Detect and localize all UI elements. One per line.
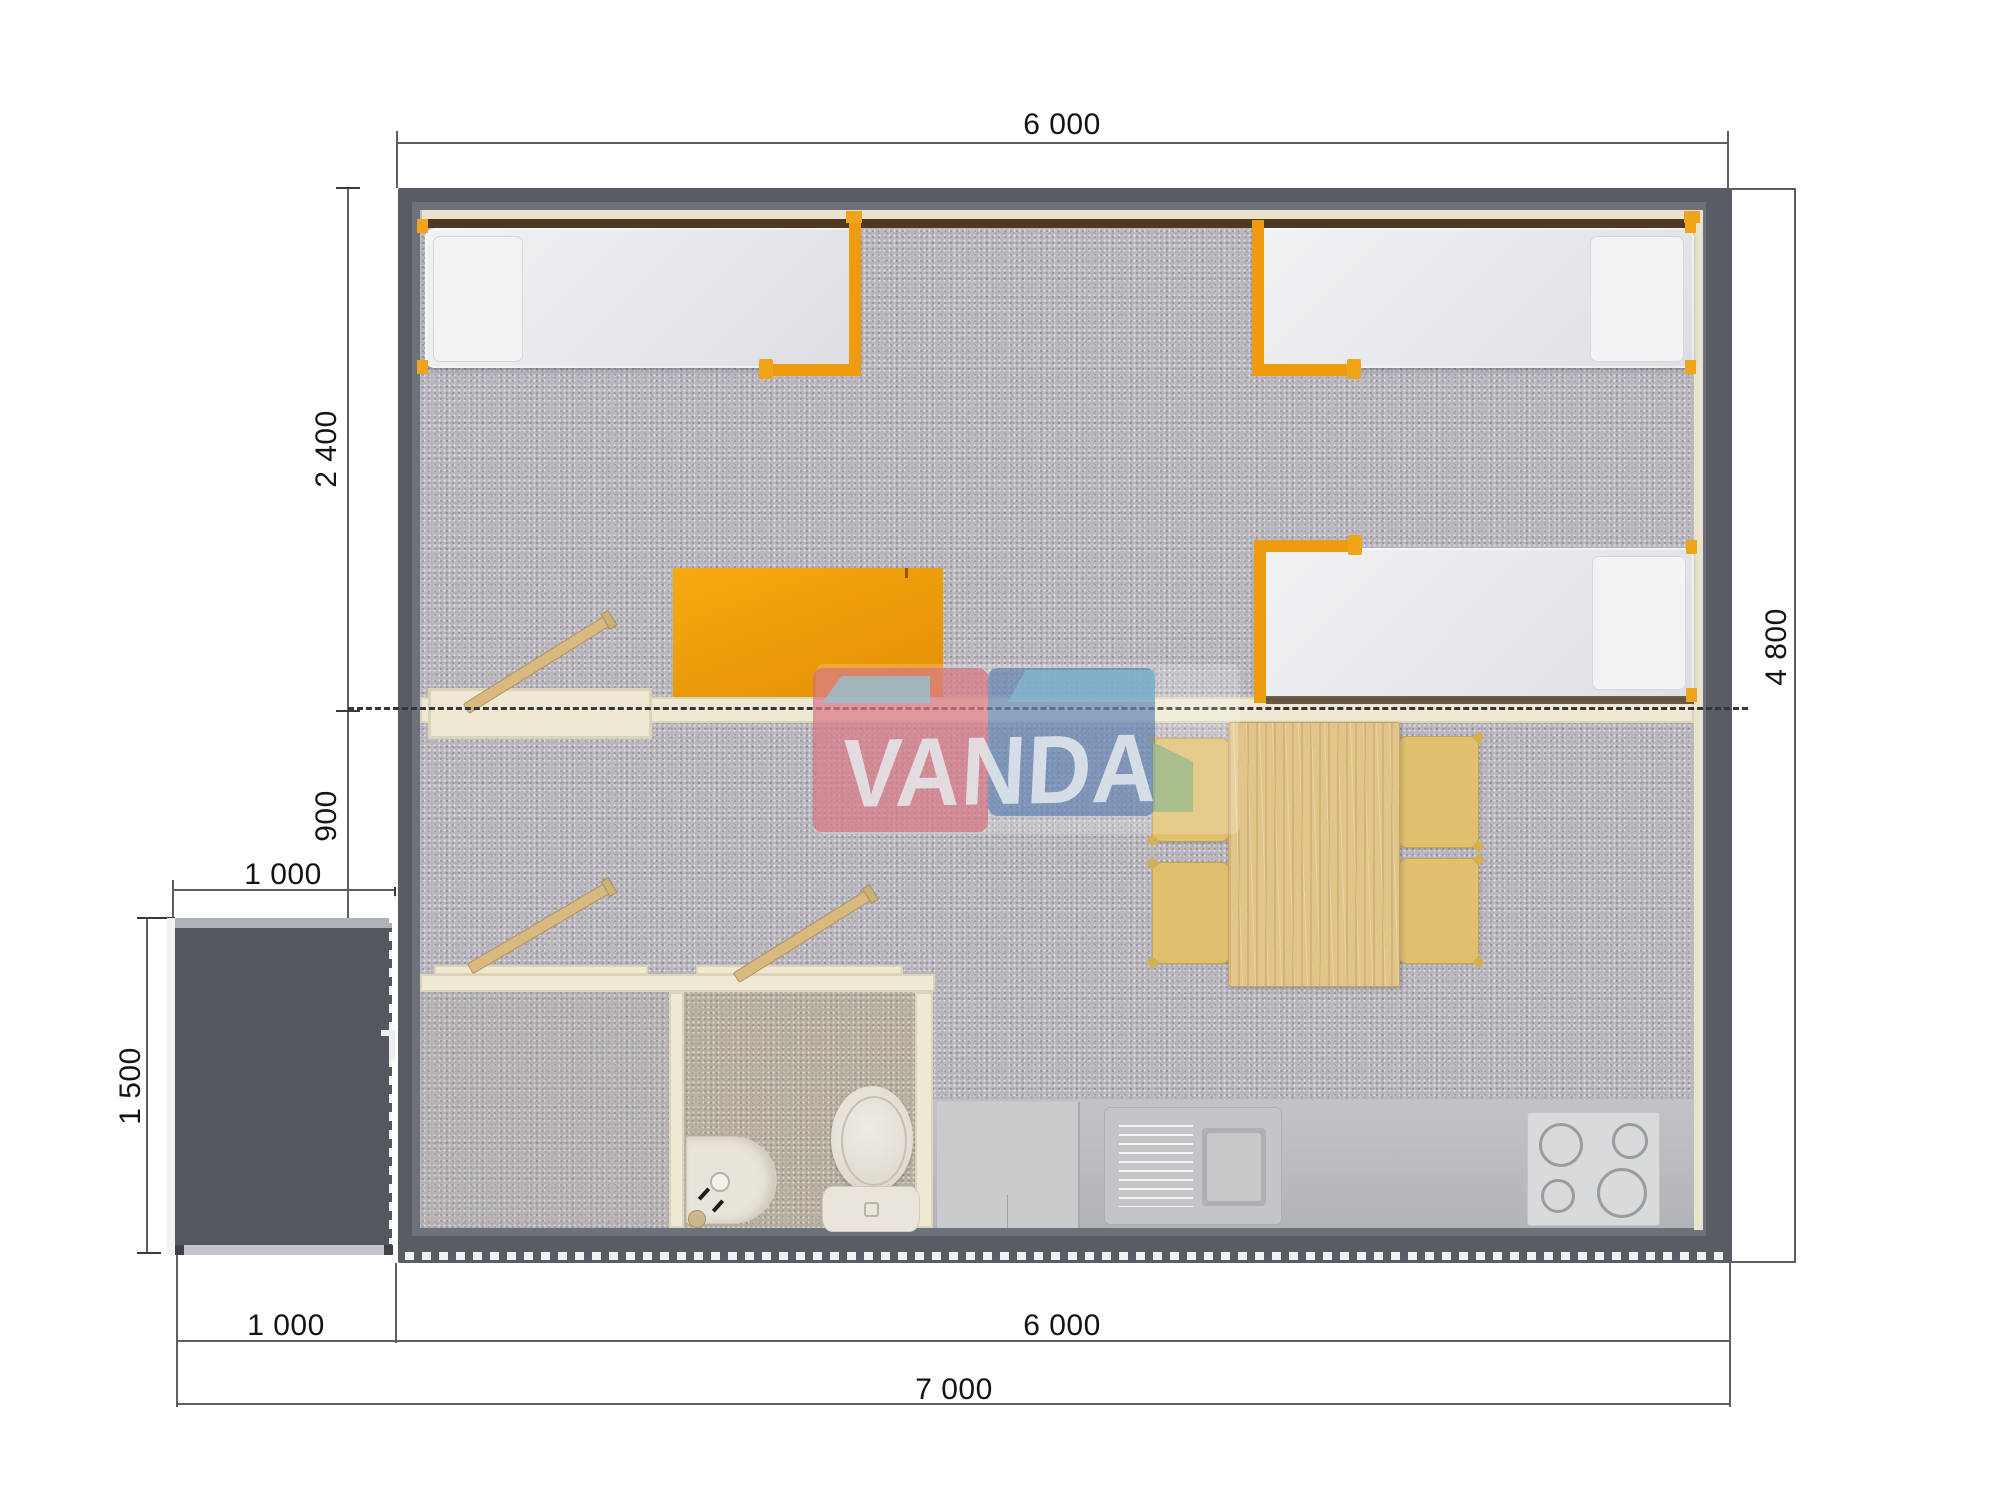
burner-icon (1539, 1123, 1583, 1167)
tick (137, 1252, 161, 1254)
bottom-wall-dashes (405, 1252, 1727, 1260)
wardrobe-handle (905, 568, 908, 578)
ext-line-top-right (1727, 131, 1729, 189)
bed-top-left-bracket (759, 359, 773, 379)
chair (1152, 862, 1230, 964)
toilet-flush-button (864, 1202, 879, 1217)
dim-line-top (397, 142, 1729, 144)
logo-teal-flap-right (1008, 670, 1155, 702)
tick (336, 187, 360, 189)
bed-right-rail-foot (1254, 540, 1266, 703)
bed-right-nub-1 (1686, 540, 1697, 554)
dim-label-porch-width: 1 000 (213, 858, 353, 892)
top-wall-trim (422, 210, 1694, 219)
ext-line-right-top (1730, 188, 1796, 190)
bed-top-left-pillow (433, 236, 523, 362)
ext-line-porch-left (172, 880, 174, 920)
porch-left-edge (167, 918, 175, 1255)
floor-plan: 6 000 2 400 900 1 000 1 500 4 800 1 000 … (0, 0, 2000, 1502)
bathroom-top-wall (420, 974, 935, 992)
bathroom-mid-wall (669, 992, 684, 1228)
bed-right-bracket (1348, 535, 1362, 555)
bed-top-right-rail-side (1252, 364, 1352, 376)
toilet-bowl-rim (841, 1096, 907, 1186)
burner-icon (1541, 1179, 1575, 1213)
top-wall-rail (425, 219, 1685, 228)
entry-door-handle-top (381, 1030, 395, 1036)
chair (1398, 736, 1479, 848)
bed-top-left-nub-2 (417, 219, 428, 233)
dining-table (1228, 722, 1400, 987)
dim-label-top-width: 6 000 (992, 108, 1132, 142)
ext-line-bottom-mid (395, 1263, 397, 1343)
dim-label-room-depth: 2 400 (310, 379, 344, 519)
tick (336, 710, 360, 712)
ext-line-right-bottom (1730, 1261, 1796, 1263)
bed-top-left-rail-foot (849, 220, 861, 376)
dim-label-bottom-total: 7 000 (884, 1373, 1024, 1407)
basin-cup (688, 1210, 706, 1228)
bed-top-left-nub-3 (417, 360, 428, 374)
left-wall-dashes (389, 230, 396, 1244)
bed-right-shadow (1266, 696, 1694, 704)
bed-top-right-nub-3 (1685, 360, 1696, 374)
burner-icon (1597, 1168, 1647, 1218)
porch-top-strip (175, 918, 392, 928)
bed-top-right-rail-foot (1252, 220, 1264, 376)
bed-right-nub-2 (1686, 688, 1697, 702)
bed-top-left-nub-1 (846, 211, 862, 223)
bed-top-left-rail-side (766, 364, 861, 376)
bed-top-right-bracket (1347, 359, 1361, 379)
porch-bottom-strip (175, 1245, 393, 1255)
dim-line-left (347, 188, 349, 920)
sink-drainboard (1119, 1125, 1193, 1207)
dim-label-porch-depth: 1 500 (114, 1016, 148, 1156)
porch-deck (175, 928, 392, 1245)
dim-label-bottom-porch: 1 000 (216, 1309, 356, 1343)
ext-line-bottom-left (176, 1255, 178, 1407)
bed-top-right-pillow (1590, 236, 1684, 362)
ext-line-top-left (396, 131, 398, 188)
chair (1398, 858, 1479, 964)
ext-line-bottom-right (1729, 1263, 1731, 1407)
bed-right-rail-side (1254, 540, 1354, 552)
bed-right-pillow (1592, 556, 1686, 690)
kitchen-cabinet (937, 1102, 1080, 1228)
dim-label-right-height: 4 800 (1760, 577, 1794, 717)
bathroom-left-floor (420, 992, 669, 1228)
bed-top-right-nub-2 (1685, 219, 1696, 233)
porch-bottom-nub-right (384, 1245, 393, 1255)
burner-icon (1612, 1123, 1648, 1159)
cabinet-seam (1007, 1195, 1008, 1228)
porch-bottom-nub-left (175, 1245, 184, 1255)
sink-basin-bottom (1207, 1133, 1261, 1201)
dim-label-bottom-building: 6 000 (992, 1309, 1132, 1343)
dim-line-bottom-1 (177, 1340, 1730, 1342)
bathroom-top-rail-1 (434, 965, 648, 975)
divider-door-panel (428, 688, 652, 739)
watermark-text: VANDA (831, 703, 1169, 839)
bathroom-top-rail-2 (696, 965, 903, 975)
faucet-icon (710, 1172, 730, 1192)
dim-line-right (1794, 189, 1796, 1263)
